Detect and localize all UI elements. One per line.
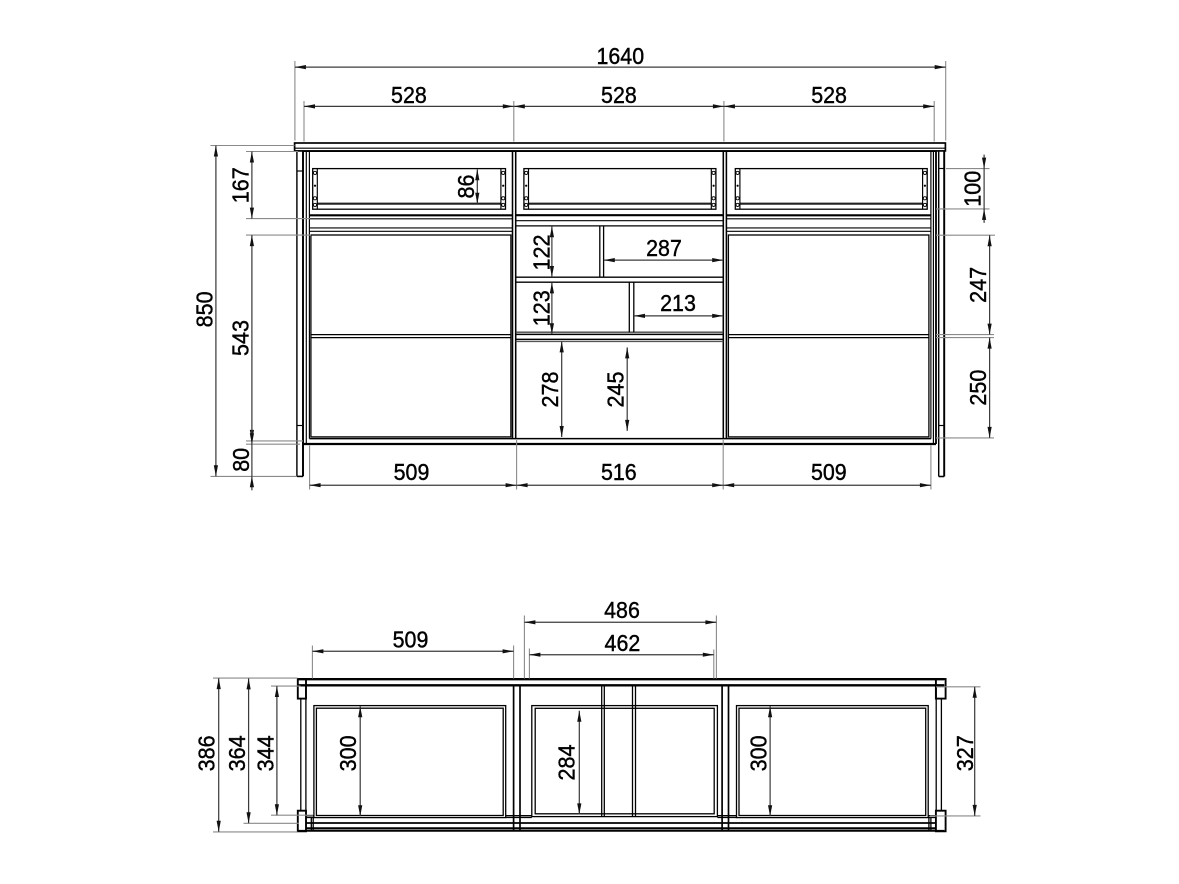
svg-text:100: 100 (959, 171, 985, 207)
svg-text:278: 278 (537, 372, 563, 408)
svg-text:86: 86 (453, 175, 479, 199)
svg-text:250: 250 (965, 370, 991, 406)
svg-text:462: 462 (605, 630, 641, 656)
svg-text:509: 509 (393, 627, 429, 653)
svg-text:486: 486 (604, 597, 640, 623)
svg-text:300: 300 (745, 735, 771, 771)
svg-text:509: 509 (811, 459, 847, 485)
svg-text:123: 123 (529, 290, 555, 326)
svg-text:528: 528 (811, 82, 847, 108)
svg-text:850: 850 (192, 291, 218, 327)
svg-text:327: 327 (952, 735, 978, 771)
svg-text:1640: 1640 (597, 43, 645, 69)
svg-text:516: 516 (601, 459, 637, 485)
svg-text:287: 287 (646, 235, 682, 261)
svg-text:543: 543 (227, 320, 253, 356)
svg-text:80: 80 (228, 448, 254, 472)
svg-text:528: 528 (391, 82, 427, 108)
svg-text:213: 213 (660, 290, 696, 316)
svg-text:386: 386 (193, 735, 219, 771)
svg-text:167: 167 (227, 167, 253, 203)
svg-text:509: 509 (394, 459, 430, 485)
svg-text:300: 300 (335, 735, 361, 771)
svg-text:364: 364 (224, 735, 250, 771)
svg-text:284: 284 (554, 744, 580, 780)
svg-text:122: 122 (529, 235, 555, 271)
svg-text:245: 245 (603, 372, 629, 408)
svg-text:528: 528 (601, 82, 637, 108)
svg-text:344: 344 (252, 735, 278, 771)
svg-text:247: 247 (965, 267, 991, 303)
